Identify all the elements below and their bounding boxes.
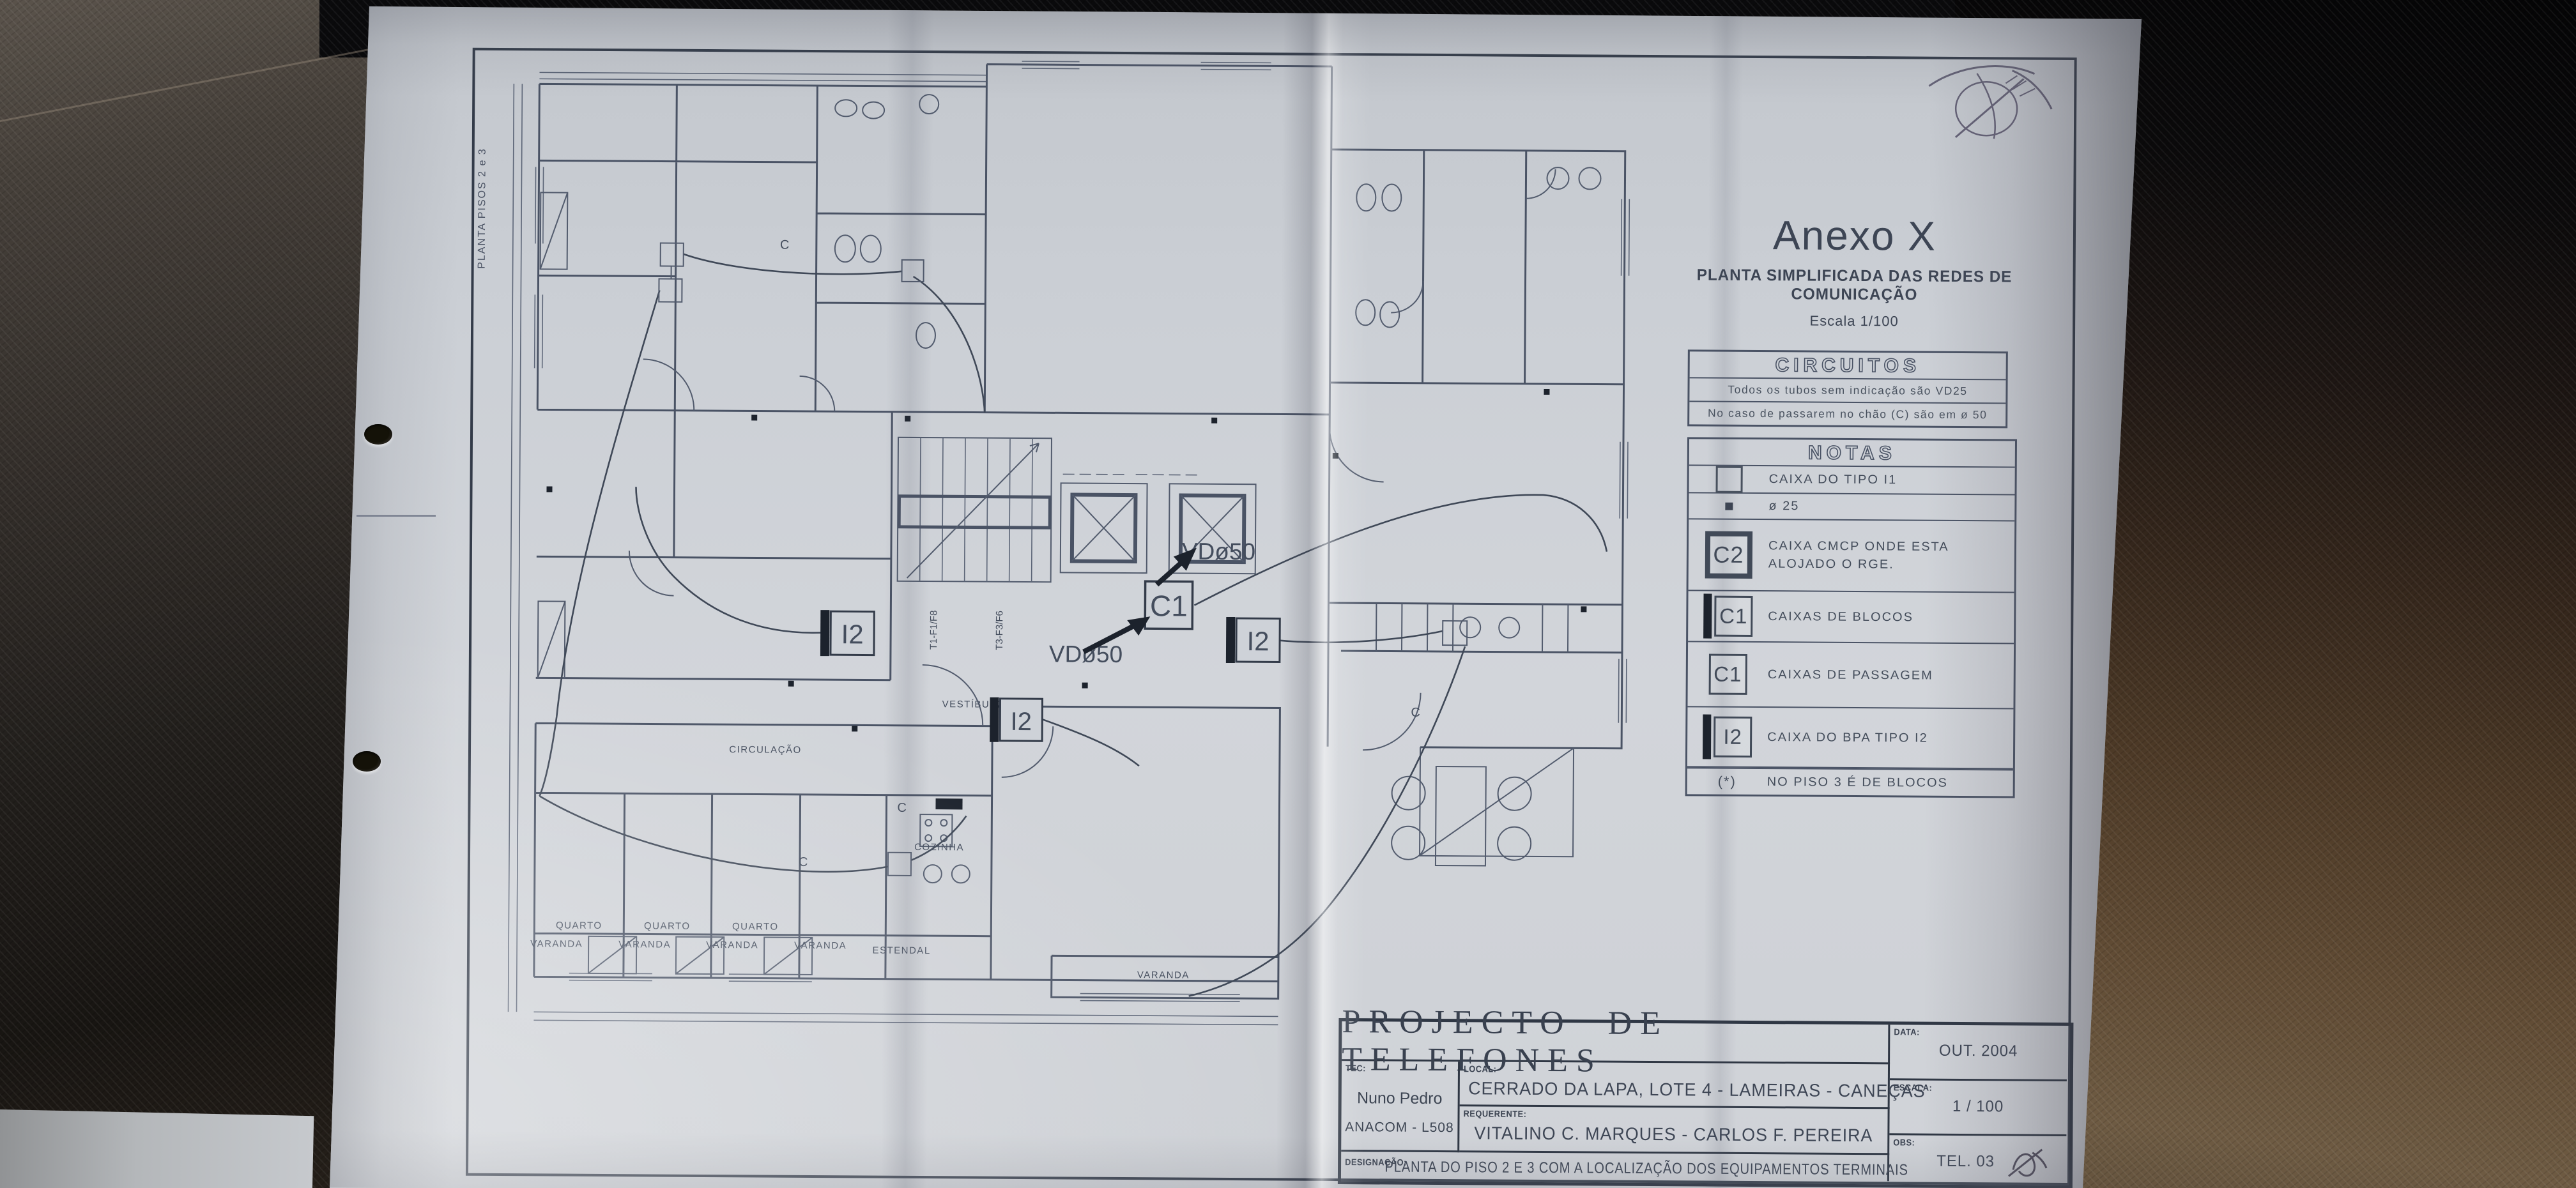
notas-row-c2: C2 CAIXA CMCP ONDE ESTA ALOJADO O RGE. <box>1689 519 2015 593</box>
notas-title: NOTAS <box>1689 439 2015 468</box>
riser-label-t3: T3-F3/F6 <box>994 611 1005 650</box>
tec-id: ANACOM - L508 <box>1341 1120 1457 1136</box>
tec-label: TEC: <box>1345 1063 1366 1073</box>
annex-heading: Anexo X PLANTA SIMPLIFICADA DAS REDES DE… <box>1634 211 2075 331</box>
room-label-cozinha: COZINHA <box>914 842 964 853</box>
walls <box>534 61 1626 1000</box>
wire-label-c4: C <box>1411 706 1420 720</box>
notas-label: CAIXAS DE BLOCOS <box>1768 607 1913 627</box>
notas-row-c1-passagem: C1 CAIXAS DE PASSAGEM <box>1687 642 2014 709</box>
cable-labels: C C C C <box>776 238 1423 873</box>
room-label-circulacao: CIRCULAÇÃO <box>729 744 801 756</box>
c1-box-symbol: C1 <box>1708 654 1747 695</box>
requerente-value: VITALINO C. MARQUES - CARLOS F. PEREIRA <box>1468 1123 1879 1146</box>
fixtures <box>831 94 1602 887</box>
escala-cell: ESCALA: 1 / 100 <box>1889 1080 2067 1136</box>
room-label-varanda-2: VARANDA <box>618 939 671 950</box>
annex-scale-note: Escala 1/100 <box>1634 312 2074 331</box>
project-title: PROJECTO DE TELEFONES <box>1342 1021 1890 1064</box>
tec-name: Nuno Pedro <box>1342 1089 1458 1108</box>
callout-i2-mid: I2 <box>1010 708 1032 736</box>
annex-title: Anexo X <box>1634 211 2075 261</box>
c1-box-symbol: C1 <box>1714 596 1752 637</box>
requerente-cell: REQUERENTE: VITALINO C. MARQUES - CARLOS… <box>1459 1106 1889 1155</box>
riser-labels: T1-F1/F8 T3-F3/F6 <box>928 610 1005 650</box>
callouts: C1 I2 I2 I2 VDø50 VDø50 <box>820 536 1280 743</box>
local-label: LOCAL: <box>1464 1063 1497 1074</box>
cable-runs <box>539 242 1609 998</box>
filled-square-symbol <box>1725 502 1733 510</box>
room-label-estendal: ESTENDAL <box>872 945 930 957</box>
circuitos-line-1: Todos os tubos sem indicação são VD25 <box>1689 377 2005 402</box>
wire-label-c2: C <box>799 855 808 869</box>
callout-vd50-lower: VDø50 <box>1049 641 1123 667</box>
callout-i2-left: I2 <box>841 619 863 649</box>
circuitos-line-2: No caso de passarem no chão (C) são em ø… <box>1689 400 2005 426</box>
door-arcs <box>628 164 1556 781</box>
callout-i2-right: I2 <box>1246 626 1269 656</box>
escala-label: ESCALA: <box>1894 1082 1933 1092</box>
local-cell: LOCAL: CERRADO DA LAPA, LOTE 4 - LAMEIRA… <box>1460 1062 1890 1109</box>
photo-scene: PLANTA PISOS 2 e 3 <box>0 0 2576 1188</box>
thick-bar-symbol <box>1703 715 1711 759</box>
room-label-varanda-1: VARANDA <box>530 938 583 950</box>
local-value: CERRADO DA LAPA, LOTE 4 - LAMEIRAS - CAN… <box>1468 1078 1879 1101</box>
notas-label: CAIXAS DE PASSAGEM <box>1768 666 1933 685</box>
i2-box-symbol: I2 <box>1713 717 1752 758</box>
room-label-varanda-3: VARANDA <box>706 940 758 951</box>
room-label-varanda-4: VARANDA <box>794 940 847 952</box>
notas-row-i2: I2 CAIXA DO BPA TIPO I2 <box>1687 707 2014 769</box>
signature-scribble <box>1916 48 2083 158</box>
notas-label: ø 25 <box>1768 498 1799 515</box>
circuitos-legend: CIRCUITOS Todos os tubos sem indicação s… <box>1687 349 2008 428</box>
wire-label-c1: C <box>780 238 790 252</box>
data-cell: DATA: OUT. 2004 <box>1890 1024 2067 1081</box>
under-paper-sheet <box>0 1109 314 1188</box>
title-block: PROJECTO DE TELEFONES TEC: Nuno Pedro AN… <box>1338 1018 2074 1188</box>
room-label-quarto-2: QUARTO <box>644 920 691 931</box>
obs-handwritten-mark <box>1997 1141 2055 1180</box>
notas-label: CAIXA DO TIPO I1 <box>1769 471 1897 489</box>
circuitos-title: CIRCUITOS <box>1690 351 2006 379</box>
punch-hole-bottom <box>353 751 381 772</box>
wire-label-c3: C <box>897 801 907 815</box>
staircase <box>898 438 1052 582</box>
notas-legend: NOTAS CAIXA DO TIPO I1 ø 25 C2 CAIXA CMC… <box>1685 437 2017 798</box>
obs-label: OBS: <box>1893 1137 1915 1147</box>
wall-sockets <box>545 383 1588 736</box>
data-value: OUT. 2004 <box>1894 1041 2064 1061</box>
designacao-value: PLANTA DO PISO 2 E 3 COM A LOCALIZAÇÃO D… <box>1384 1158 1843 1178</box>
asterisk-symbol: (*) <box>1718 773 1736 790</box>
annex-subtitle: PLANTA SIMPLIFICADA DAS REDES DE COMUNIC… <box>1641 266 2069 305</box>
obs-cell: OBS: TEL. 03 <box>1889 1135 2066 1182</box>
data-label: DATA: <box>1894 1026 1920 1037</box>
riser-label-t1: T1-F1/F8 <box>928 610 939 650</box>
designacao-cell: DESIGNAÇÃO: PLANTA DO PISO 2 E 3 COM A L… <box>1341 1152 1889 1181</box>
notas-label: CAIXA DO BPA TIPO I2 <box>1767 728 1928 747</box>
notas-row-caixa-i1: CAIXA DO TIPO I1 <box>1689 466 2015 495</box>
c2-box-symbol: C2 <box>1705 531 1752 579</box>
callout-c1: C1 <box>1150 589 1188 622</box>
escala-value: 1 / 100 <box>1893 1097 2063 1116</box>
requerente-label: REQUERENTE: <box>1464 1108 1527 1119</box>
notas-label: NO PISO 3 É DE BLOCOS <box>1767 773 1948 792</box>
notas-row-asterisk: (*) NO PISO 3 É DE BLOCOS <box>1687 767 2013 796</box>
notas-row-tube-25: ø 25 <box>1689 493 2014 521</box>
thick-bar-symbol <box>1703 594 1712 639</box>
balcony-railings <box>536 192 1577 979</box>
windows <box>531 58 1630 1003</box>
notas-row-c1-blocos: C1 CAIXAS DE BLOCOS <box>1688 591 2014 644</box>
notas-label: CAIXA CMCP ONDE ESTA ALOJADO O RGE. <box>1768 537 1998 574</box>
square-outline-symbol <box>1715 466 1742 492</box>
room-label-varanda-5: VARANDA <box>1137 970 1190 981</box>
floor-plan: C C C C T1-F1/F8 T3-F3/F6 CIRCULAÇÃO VES… <box>479 26 1660 1030</box>
pencil-mark <box>356 515 436 517</box>
punch-hole-top <box>364 424 392 445</box>
room-label-quarto-3: QUARTO <box>732 921 779 932</box>
technician-cell: TEC: Nuno Pedro ANACOM - L508 <box>1341 1061 1460 1152</box>
room-label-quarto-1: QUARTO <box>556 920 602 931</box>
